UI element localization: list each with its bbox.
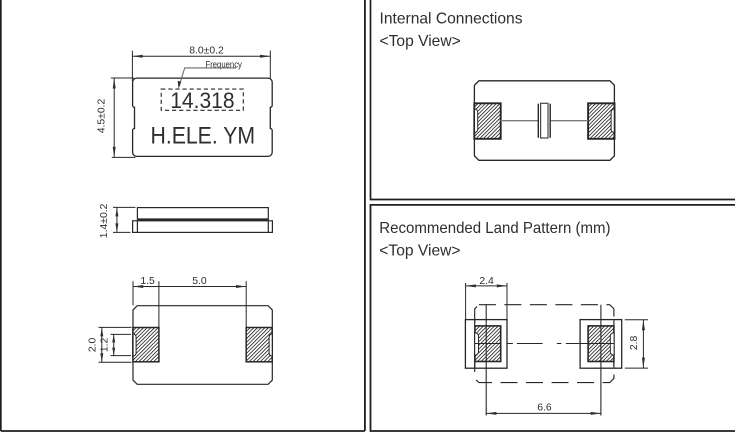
svg-text:Recommended Land Pattern (mm): Recommended Land Pattern (mm) [379, 220, 610, 237]
svg-text:5.0: 5.0 [192, 276, 207, 287]
svg-text:2.0: 2.0 [87, 337, 98, 352]
svg-text:14.318: 14.318 [170, 88, 234, 113]
svg-text:1.4±0.2: 1.4±0.2 [99, 203, 110, 238]
svg-text:4.5±0.2: 4.5±0.2 [97, 98, 108, 133]
svg-text:2.4: 2.4 [479, 276, 494, 287]
svg-text:<Top View>: <Top View> [380, 33, 461, 50]
svg-text:Internal Connections: Internal Connections [380, 11, 523, 28]
svg-text:8.0±0.2: 8.0±0.2 [189, 46, 224, 57]
svg-text:6.6: 6.6 [537, 403, 552, 414]
svg-text:2.8: 2.8 [629, 335, 640, 350]
svg-text:<Top View>: <Top View> [379, 243, 460, 260]
svg-text:H.ELE. YM: H.ELE. YM [151, 122, 256, 149]
svg-text:1.2: 1.2 [99, 337, 110, 352]
svg-text:1.5: 1.5 [140, 276, 155, 287]
